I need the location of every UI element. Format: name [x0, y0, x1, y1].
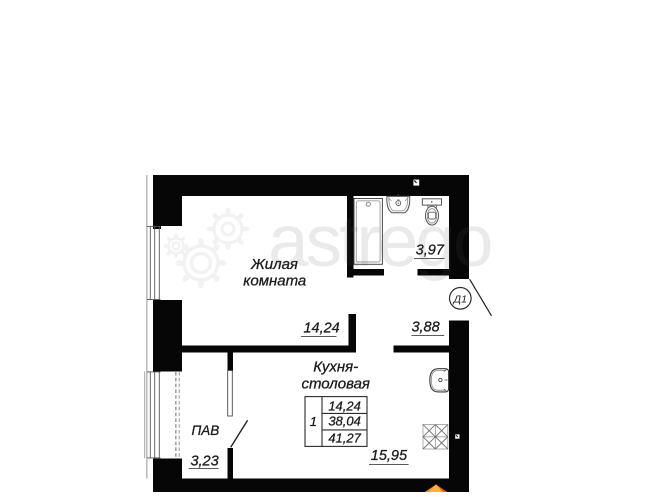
svg-text:ПАВ: ПАВ: [192, 423, 220, 438]
svg-text:Кухня-: Кухня-: [313, 358, 358, 375]
svg-text:3,23: 3,23: [190, 453, 218, 469]
svg-text:14,24: 14,24: [303, 320, 339, 336]
svg-text:Д1: Д1: [453, 293, 467, 305]
svg-text:1: 1: [310, 414, 317, 429]
svg-text:14,24: 14,24: [328, 399, 361, 414]
svg-text:38,04: 38,04: [328, 413, 361, 428]
svg-text:41,27: 41,27: [328, 430, 361, 445]
svg-text:astrego: astrego: [268, 201, 491, 282]
svg-text:15,95: 15,95: [371, 448, 408, 464]
svg-text:3,88: 3,88: [411, 320, 439, 336]
svg-text:столовая: столовая: [301, 375, 370, 392]
